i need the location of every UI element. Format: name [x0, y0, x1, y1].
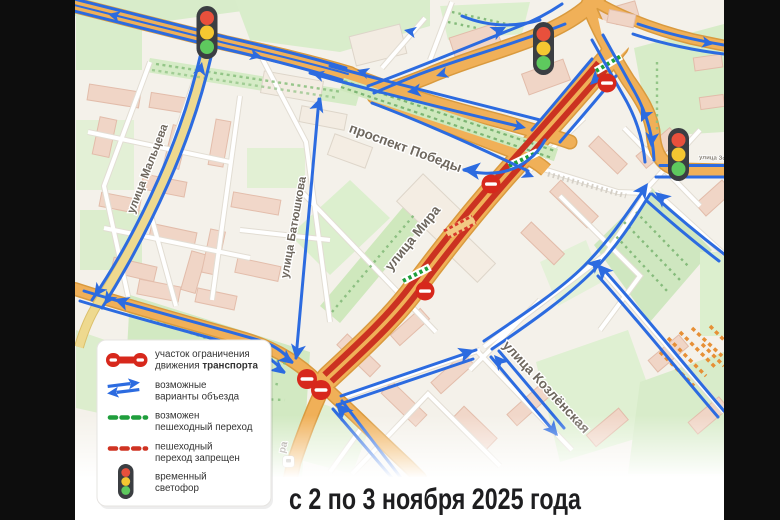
- svg-text:переход запрещен: переход запрещен: [155, 453, 240, 464]
- svg-text:возможен: возможен: [155, 411, 199, 422]
- svg-text:с 2 по 3 ноября 2025 года: с 2 по 3 ноября 2025 года: [289, 483, 581, 516]
- svg-text:участок ограничения: участок ограничения: [155, 349, 250, 360]
- svg-text:варианты объезда: варианты объезда: [155, 392, 240, 403]
- svg-text:светофор: светофор: [155, 483, 199, 494]
- svg-text:временный: временный: [155, 472, 207, 483]
- svg-text:движения транспорта: движения транспорта: [155, 361, 258, 372]
- svg-text:пешеходный переход: пешеходный переход: [155, 422, 253, 433]
- svg-text:пешеходный: пешеходный: [155, 442, 213, 453]
- svg-text:возможные: возможные: [155, 380, 207, 391]
